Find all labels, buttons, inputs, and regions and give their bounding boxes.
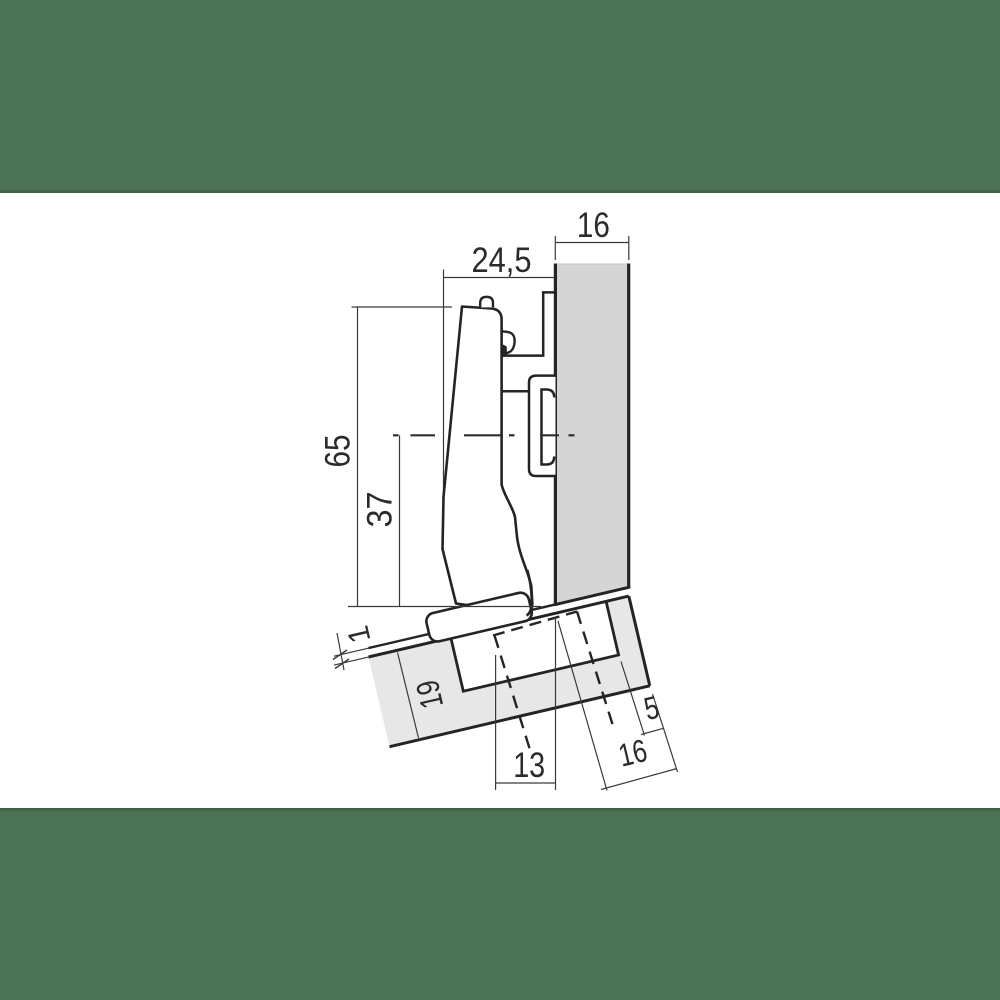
svg-text:24,5: 24,5 [472,241,532,280]
svg-text:16: 16 [577,206,610,245]
svg-text:65: 65 [319,435,358,468]
svg-text:37: 37 [361,492,400,528]
svg-text:13: 13 [513,746,545,785]
